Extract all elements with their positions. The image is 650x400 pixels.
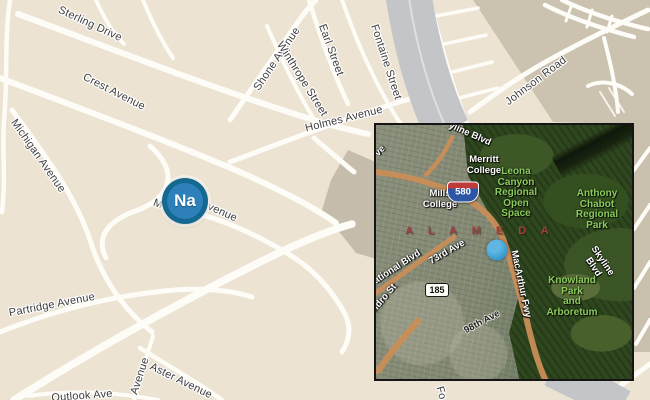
na-marker[interactable]: Na xyxy=(162,178,208,224)
inset-label-alameda: A L A M E D A xyxy=(405,225,555,237)
inset-overview-map[interactable]: ve yline Blvd Merritt College Leona Cany… xyxy=(374,123,634,381)
inset-label-knowland-park: Knowland Park and Arboretum xyxy=(546,276,597,318)
na-marker-label: Na xyxy=(167,183,203,219)
interstate-580-shield: 580 xyxy=(447,182,479,203)
inset-label-leona-canyon: Leona Canyon Regional Open Space xyxy=(495,167,537,220)
inset-label-anthony-chabot: Anthony Chabot Regional Park xyxy=(576,189,618,231)
inset-location-dot[interactable] xyxy=(487,240,508,261)
main-map[interactable]: Sterling Drive Crest Avenue Michigan Ave… xyxy=(0,0,650,400)
route-185-shield: 185 xyxy=(425,283,449,297)
